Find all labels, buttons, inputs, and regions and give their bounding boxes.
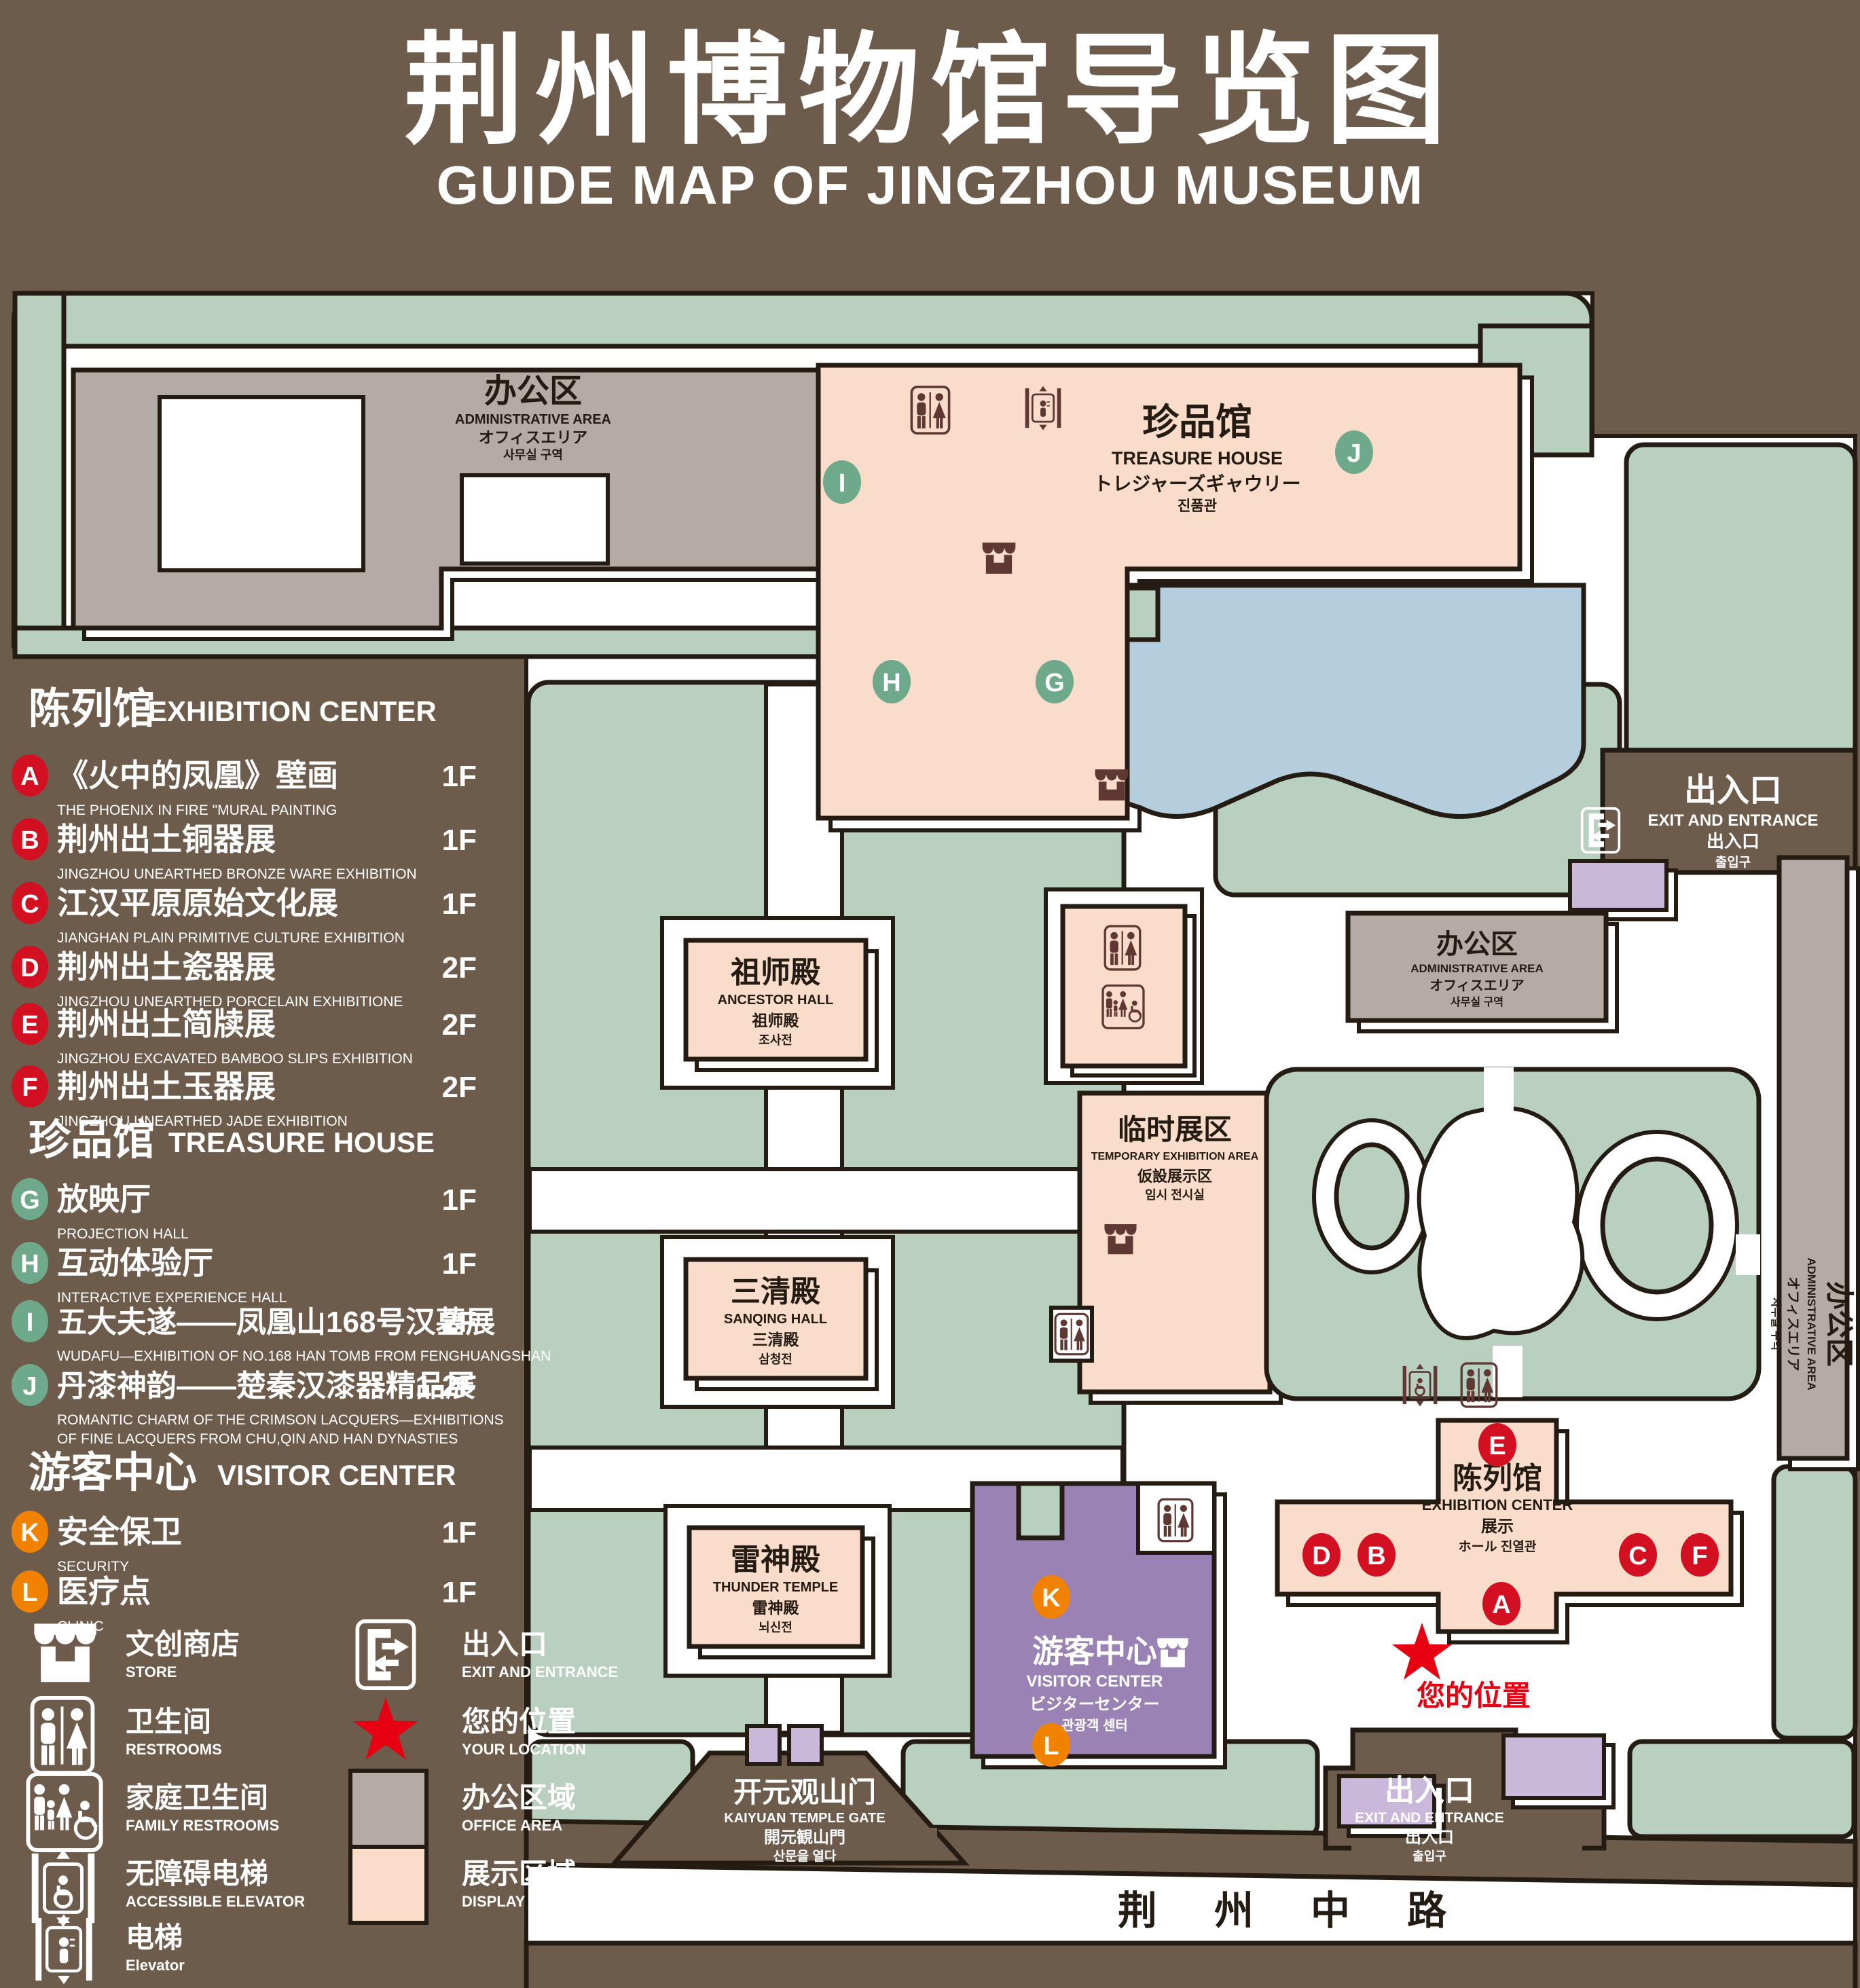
visitor-label-ja: ビジターセンター	[1029, 1695, 1160, 1714]
svg-text:B: B	[20, 826, 39, 855]
admin-nw-label-en: ADMINISTRATIVE AREA	[455, 412, 611, 427]
admin-mid-label-zh: 办公区	[1436, 929, 1518, 959]
gate-pillar	[747, 1726, 780, 1764]
svg-text:J: J	[22, 1372, 37, 1401]
admin-mid-label-ja: オフィスエリア	[1429, 978, 1525, 993]
marker-k: K	[1032, 1575, 1070, 1619]
entrance-block	[1503, 1735, 1604, 1798]
svg-text:1F: 1F	[442, 887, 477, 921]
svg-text:I: I	[839, 469, 846, 498]
lawn-top-band	[15, 293, 1592, 346]
svg-text:电梯: 电梯	[126, 1921, 183, 1953]
admin-mid-label-ko: 사무실 구역	[1451, 996, 1503, 1008]
svg-text:1F: 1F	[442, 824, 477, 857]
svg-text:1F: 1F	[442, 1576, 477, 1609]
svg-text:PROJECTION HALL: PROJECTION HALL	[57, 1226, 189, 1242]
svg-text:1F: 1F	[442, 760, 477, 793]
marker-l: L	[1032, 1723, 1070, 1767]
svg-text:A: A	[1492, 1591, 1510, 1619]
visitor-label-en: VISITOR CENTER	[1027, 1672, 1163, 1691]
treasure-label-ko: 진품관	[1178, 498, 1217, 514]
thunder-label-ja: 雷神殿	[752, 1599, 800, 1617]
lawn-bottom-right	[1630, 1742, 1854, 1837]
svg-text:放映厅: 放映厅	[57, 1181, 151, 1217]
svg-text:JINGZHOU UNEARTHED BRONZE WARE: JINGZHOU UNEARTHED BRONZE WARE EXHIBITIO…	[57, 866, 417, 882]
svg-text:K: K	[1042, 1584, 1061, 1613]
svg-text:展示区域: 展示区域	[462, 1858, 576, 1890]
marker-d: D	[1302, 1533, 1341, 1577]
visitor-label-ko: 관광객 센터	[1061, 1718, 1128, 1733]
marker-e: E	[1478, 1423, 1516, 1467]
thunder-label-zh: 雷神殿	[731, 1543, 820, 1577]
road-label: 荆 州 中 路	[1118, 1889, 1470, 1933]
temporary-label-en: TEMPORARY EXHIBITION AREA	[1091, 1151, 1259, 1162]
svg-text:FAMILY RESTROOMS: FAMILY RESTROOMS	[126, 1817, 279, 1834]
building-visitor-center: 游客中心 VISITOR CENTER ビジターセンター 관광객 센터	[972, 1484, 1225, 1767]
svg-text:2F: 2F	[442, 1071, 477, 1104]
svg-text:OF FINE LACQUERS FROM CHU,QIN: OF FINE LACQUERS FROM CHU,QIN AND HAN DY…	[57, 1431, 458, 1447]
lawn-east-top	[1626, 445, 1855, 764]
exit-east-label-ko: 출입구	[1715, 855, 1751, 870]
svg-text:G: G	[1044, 669, 1065, 697]
building-temporary-exhibition: 临时展区 TEMPORARY EXHIBITION AREA 仮設展示区 임시 …	[1051, 1093, 1281, 1403]
legend-section-exhibition-zh: 陈列馆	[29, 686, 155, 733]
svg-text:五大夫遂——凤凰山168号汉墓展: 五大夫遂——凤凰山168号汉墓展	[57, 1306, 495, 1339]
gate-label-zh: 开元观山门	[733, 1776, 876, 1808]
svg-text:B: B	[1367, 1542, 1385, 1570]
exit-south-label-ja: 出入口	[1405, 1828, 1454, 1847]
admin-nw-label-zh: 办公区	[484, 373, 582, 409]
gate-label-ja: 開元観山門	[764, 1828, 845, 1847]
admin-mid-label-en: ADMINISTRATIVE AREA	[1410, 962, 1544, 975]
legend-section-treasure-en: TREASURE HOUSE	[168, 1126, 435, 1158]
admin-nw-label-ja: オフィスエリア	[479, 428, 588, 446]
temporary-label-zh: 临时展区	[1118, 1113, 1232, 1145]
svg-text:2F: 2F	[442, 1306, 477, 1339]
svg-text:家庭卫生间: 家庭卫生间	[126, 1782, 268, 1814]
exhibition-label-ja2: ホール 진열관	[1459, 1539, 1537, 1554]
svg-text:1-2F: 1-2F	[416, 1369, 477, 1403]
your-location-label: 您的位置	[1417, 1680, 1531, 1712]
svg-text:无障碍电梯: 无障碍电梯	[126, 1858, 268, 1890]
svg-text:ACCESSIBLE ELEVATOR: ACCESSIBLE ELEVATOR	[126, 1893, 305, 1910]
restroom-block	[1063, 906, 1195, 1075]
admin-east-label-zh: 办公区	[1823, 1281, 1855, 1367]
svg-text:《火中的凤凰》壁画: 《火中的凤凰》壁画	[57, 758, 338, 793]
svg-text:荆州出土简牍展: 荆州出土简牍展	[57, 1006, 276, 1042]
exit-east-label-zh: 出入口	[1684, 773, 1782, 809]
legend-item-i: I 五大夫遂——凤凰山168号汉墓展 WUDAFU—EXHIBITION OF …	[12, 1300, 551, 1364]
svg-text:Elevator: Elevator	[126, 1957, 185, 1974]
building-admin-middle: 办公区 ADMINISTRATIVE AREA オフィスエリア 사무실 구역	[1348, 913, 1617, 1031]
svg-text:D: D	[20, 954, 39, 982]
svg-text:F: F	[1692, 1542, 1707, 1570]
exit-south-label-zh: 出入口	[1385, 1774, 1474, 1807]
sanqing-label-ko: 삼청전	[759, 1352, 792, 1366]
ancestor-label-en: ANCESTOR HALL	[718, 993, 834, 1008]
svg-text:办公区域: 办公区域	[462, 1782, 576, 1814]
exit-east-label-en: EXIT AND ENTRANCE	[1647, 811, 1818, 830]
sanqing-label-ja: 三清殿	[752, 1331, 800, 1348]
building-ancestor-hall: 祖师殿 ANCESTOR HALL 祖师殿 조사전	[686, 940, 877, 1070]
building-treasure-house: 珍品馆 TREASURE HOUSE トレジャーズギャウリー 진품관	[818, 365, 1584, 830]
admin-east-label-ja: オフィスエリア	[1785, 1276, 1800, 1372]
svg-text:出入口: 出入口	[462, 1628, 547, 1660]
svg-text:ROMANTIC CHARM OF THE CRIMSON: ROMANTIC CHARM OF THE CRIMSON LACQUERS—E…	[57, 1412, 504, 1428]
svg-text:文创商店: 文创商店	[126, 1628, 240, 1660]
museum-map-canvas: 荆州博物馆导览图 GUIDE MAP OF JINGZHOU MUSEUM 办公	[0, 0, 1860, 1988]
admin-east-label-en: ADMINISTRATIVE AREA	[1805, 1257, 1818, 1391]
thunder-label-en: THUNDER TEMPLE	[713, 1580, 838, 1595]
exit-south-label-en: EXIT AND ENTRANCE	[1355, 1810, 1504, 1826]
exit-south-label-ko: 출입구	[1412, 1849, 1446, 1863]
temporary-label-ja: 仮設展示区	[1137, 1168, 1212, 1185]
garden-pond	[1419, 1108, 1583, 1338]
svg-text:江汉平原原始文化展: 江汉平原原始文化展	[57, 885, 338, 921]
legend-section-treasure-zh: 珍品馆	[29, 1117, 155, 1164]
svg-text:YOUR LOCATION: YOUR LOCATION	[462, 1741, 586, 1758]
treasure-label-ja: トレジャーズギャウリー	[1093, 473, 1300, 494]
ancestor-label-zh: 祖师殿	[731, 956, 820, 989]
marker-c: C	[1619, 1533, 1657, 1577]
display-area-swatch	[350, 1847, 426, 1923]
svg-text:H: H	[20, 1250, 39, 1278]
svg-text:1F: 1F	[442, 1516, 477, 1549]
legend-section-visitor-en: VISITOR CENTER	[217, 1459, 456, 1491]
svg-text:I: I	[26, 1308, 34, 1337]
svg-text:荆州出土玉器展: 荆州出土玉器展	[57, 1069, 276, 1104]
treasure-label-zh: 珍品馆	[1142, 402, 1252, 443]
svg-text:E: E	[21, 1011, 38, 1039]
road-south-edge	[526, 1943, 1855, 1988]
office-area-swatch	[350, 1771, 426, 1847]
treasure-label-en: TREASURE HOUSE	[1112, 448, 1283, 468]
svg-text:RESTROOMS: RESTROOMS	[126, 1741, 222, 1758]
svg-text:2F: 2F	[442, 1008, 477, 1042]
temporary-label-ko: 임시 전시실	[1145, 1188, 1205, 1202]
entrance-block	[1570, 861, 1666, 910]
garden	[1266, 1067, 1760, 1399]
visitor-label-zh: 游客中心	[1032, 1634, 1157, 1669]
gate-label-ko: 산문을 열다	[773, 1849, 837, 1864]
gate-pillar	[789, 1726, 822, 1764]
marker-i: I	[823, 460, 861, 504]
marker-j: J	[1335, 430, 1373, 474]
marker-g: G	[1036, 660, 1074, 703]
svg-text:互动体验厅: 互动体验厅	[57, 1245, 213, 1281]
ancestor-label-ja: 祖师殿	[752, 1012, 800, 1029]
page-title: 荆州博物馆导览图	[403, 23, 1457, 158]
svg-text:丹漆神韵——楚秦汉漆器精品展: 丹漆神韵——楚秦汉漆器精品展	[57, 1369, 475, 1403]
legend-section-visitor-zh: 游客中心	[29, 1450, 197, 1496]
ancestor-label-ko: 조사전	[759, 1033, 792, 1047]
thunder-label-ko: 뇌신전	[759, 1621, 792, 1634]
svg-text:医疗点: 医疗点	[57, 1574, 151, 1609]
svg-text:1F: 1F	[442, 1247, 477, 1281]
marker-a: A	[1482, 1582, 1520, 1625]
sanqing-label-zh: 三清殿	[731, 1275, 820, 1308]
building-admin-east: 办公区 ADMINISTRATIVE AREA オフィスエリア 사무실 구역	[1770, 858, 1858, 1469]
svg-text:C: C	[20, 890, 39, 919]
svg-text:THE PHOENIX IN FIRE "MURAL PAI: THE PHOENIX IN FIRE "MURAL PAINTING	[57, 803, 337, 818]
building-sanqing-hall: 三清殿 SANQING HALL 三清殿 삼청전	[686, 1259, 877, 1389]
svg-text:H: H	[882, 669, 900, 697]
exhibition-label-ja: 展示	[1481, 1517, 1514, 1536]
marker-f: F	[1681, 1533, 1719, 1577]
svg-text:J: J	[1347, 439, 1361, 468]
svg-text:G: G	[20, 1186, 40, 1215]
svg-text:1F: 1F	[442, 1183, 477, 1217]
svg-text:C: C	[1628, 1542, 1647, 1570]
exit-east-label-ja: 出入口	[1707, 831, 1759, 851]
svg-text:JIANGHAN PLAIN PRIMITIVE CULTU: JIANGHAN PLAIN PRIMITIVE CULTURE EXHIBIT…	[57, 930, 405, 946]
svg-text:2F: 2F	[442, 951, 477, 984]
svg-text:STORE: STORE	[126, 1663, 177, 1680]
building-thunder-temple: 雷神殿 THUNDER TEMPLE 雷神殿 뇌신전	[689, 1528, 873, 1657]
lawn-left-strip	[15, 293, 64, 646]
svg-text:E: E	[1489, 1432, 1506, 1460]
svg-text:安全保卫: 安全保卫	[57, 1514, 182, 1549]
gate-label-en: KAIYUAN TEMPLE GATE	[724, 1811, 885, 1826]
svg-text:DISPLAY AREA: DISPLAY AREA	[462, 1893, 571, 1910]
svg-text:A: A	[20, 762, 39, 791]
svg-text:K: K	[20, 1519, 39, 1547]
svg-text:SECURITY: SECURITY	[57, 1559, 129, 1575]
svg-text:OFFICE AREA: OFFICE AREA	[462, 1817, 562, 1834]
svg-text:您的位置: 您的位置	[462, 1706, 576, 1737]
svg-text:荆州出土瓷器展: 荆州出土瓷器展	[57, 949, 276, 984]
svg-text:INTERACTIVE EXPERIENCE HALL: INTERACTIVE EXPERIENCE HALL	[57, 1290, 287, 1306]
legend-section-exhibition-en: EXHIBITION CENTER	[148, 695, 437, 727]
sanqing-label-en: SANQING HALL	[724, 1312, 827, 1327]
svg-text:WUDAFU—EXHIBITION OF NO.168 HA: WUDAFU—EXHIBITION OF NO.168 HAN TOMB FRO…	[57, 1348, 551, 1364]
svg-text:L: L	[1043, 1732, 1059, 1761]
page-subtitle: GUIDE MAP OF JINGZHOU MUSEUM	[437, 155, 1425, 215]
admin-east-label-ko: 사무실 구역	[1770, 1297, 1782, 1350]
marker-h: H	[873, 660, 911, 703]
svg-text:JINGZHOU EXCAVATED BAMBOO SLIP: JINGZHOU EXCAVATED BAMBOO SLIPS EXHIBITI…	[57, 1051, 413, 1067]
exhibition-label-zh: 陈列馆	[1453, 1462, 1542, 1495]
marker-b: B	[1357, 1533, 1396, 1577]
admin-nw-label-ko: 사무실 구역	[503, 448, 563, 462]
svg-text:EXIT AND ENTRANCE: EXIT AND ENTRANCE	[462, 1663, 618, 1680]
svg-text:卫生间: 卫生间	[126, 1706, 211, 1737]
guide-map-page: 荆州博物馆导览图 GUIDE MAP OF JINGZHOU MUSEUM 办公	[0, 0, 1860, 1988]
svg-text:荆州出土铜器展: 荆州出土铜器展	[57, 822, 276, 857]
lawn-east-strip	[1774, 1467, 1855, 1738]
svg-text:F: F	[22, 1073, 37, 1102]
svg-text:L: L	[22, 1579, 37, 1607]
svg-text:D: D	[1312, 1542, 1330, 1570]
exhibition-label-en: EXHIBITION CENTER	[1422, 1496, 1573, 1513]
